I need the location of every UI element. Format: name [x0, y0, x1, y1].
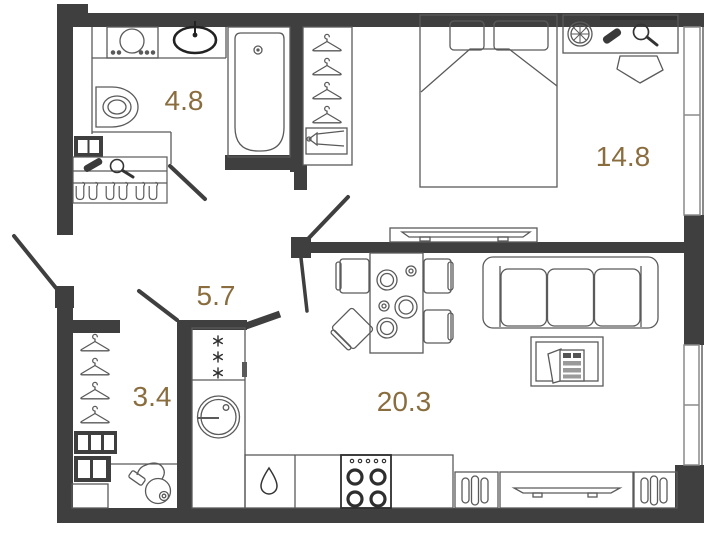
hanger-icon — [81, 334, 109, 350]
hanger-icon — [313, 34, 341, 50]
plate-icon — [395, 296, 417, 318]
area-label-bedroom: 14.8 — [596, 143, 651, 171]
window-living — [684, 345, 702, 465]
kitchen-furniture — [192, 328, 677, 508]
pouf-icon — [617, 56, 663, 83]
shoe-cabinet-outline — [73, 157, 167, 203]
chair-icon — [424, 259, 453, 293]
tv-console-icon — [500, 472, 633, 508]
tv-icon — [390, 228, 537, 242]
water-drop-icon — [261, 468, 277, 494]
radiator-icon — [455, 472, 498, 508]
entry-door-leaf-block — [55, 286, 74, 308]
bedroom-furniture — [390, 15, 678, 242]
window-bedroom — [684, 27, 703, 215]
cup-icon — [379, 301, 389, 311]
brush-icon — [602, 27, 623, 45]
floor-plan-drawing — [0, 0, 720, 534]
storage-box — [72, 484, 108, 508]
wall-bathroom-right — [290, 27, 303, 172]
door-swing-icon-bedroom — [306, 197, 348, 241]
boots-icon — [76, 182, 157, 199]
wardrobe-top — [303, 27, 352, 165]
bathroom-counter — [92, 27, 226, 164]
hanger-icon — [313, 58, 341, 74]
walls — [55, 4, 704, 523]
wall-left-lower — [57, 288, 73, 523]
vacuum-cleaner-icon — [128, 463, 170, 503]
stool-icon — [568, 22, 592, 46]
window-icon — [684, 27, 700, 215]
shoe-box-icon — [306, 128, 347, 154]
hand-mirror-icon — [111, 160, 134, 178]
hanger-icon — [81, 382, 109, 398]
cup-icon — [406, 266, 416, 276]
vanity-mirror-icon — [600, 16, 677, 20]
storage-closet-furniture — [72, 334, 177, 508]
area-label-bathroom: 4.8 — [165, 87, 204, 115]
coffee-table-icon — [531, 337, 603, 386]
chair-icon — [336, 259, 369, 293]
chair-icon — [424, 310, 453, 343]
toilet-icon — [96, 87, 138, 127]
washing-machine-icon — [107, 27, 158, 58]
hanger-icon — [313, 82, 341, 98]
wall-angled-kitchen — [246, 314, 280, 326]
door-swing-icon-living — [301, 258, 307, 311]
floor-plan: 4.8 14.8 5.7 3.4 20.3 — [0, 0, 720, 534]
shoe-rack-icon — [74, 456, 111, 482]
vent-shaft-icon — [74, 136, 103, 157]
area-label-storage: 3.4 — [133, 383, 172, 411]
shoe-rack-icon — [74, 431, 117, 454]
wall-right-middle — [684, 215, 704, 345]
hanger-icon — [81, 406, 109, 422]
living-furniture — [328, 253, 658, 386]
hanger-icon — [313, 106, 341, 122]
chair-icon — [328, 307, 373, 352]
door-swing-icon-entry — [14, 236, 56, 288]
wall-left-upper — [57, 27, 73, 235]
tableware — [377, 266, 417, 338]
washer-drum-icon — [198, 396, 240, 438]
wall-closet-top — [73, 320, 120, 333]
bathtub-icon — [228, 27, 290, 157]
wall-closet-right — [177, 320, 192, 508]
door-swing-icon-bathroom — [170, 166, 205, 199]
door-swing-icon-closet — [139, 291, 177, 320]
area-label-hallway: 5.7 — [197, 282, 236, 310]
wall-bottom-right-corner — [675, 465, 704, 523]
blanket-fold — [421, 49, 557, 92]
wall-bedroom-living-divider — [300, 242, 684, 253]
entry-console — [73, 157, 167, 203]
magazines-icon — [548, 349, 584, 383]
area-label-kitchen-living: 20.3 — [377, 388, 432, 416]
hanger-icon — [81, 358, 109, 374]
hand-mirror-icon — [634, 25, 658, 46]
bed-icon — [420, 15, 557, 187]
stove-icon — [341, 455, 391, 508]
radiator-icon — [634, 472, 677, 508]
sofa-icon — [483, 257, 658, 328]
wall-bottom — [57, 508, 704, 523]
